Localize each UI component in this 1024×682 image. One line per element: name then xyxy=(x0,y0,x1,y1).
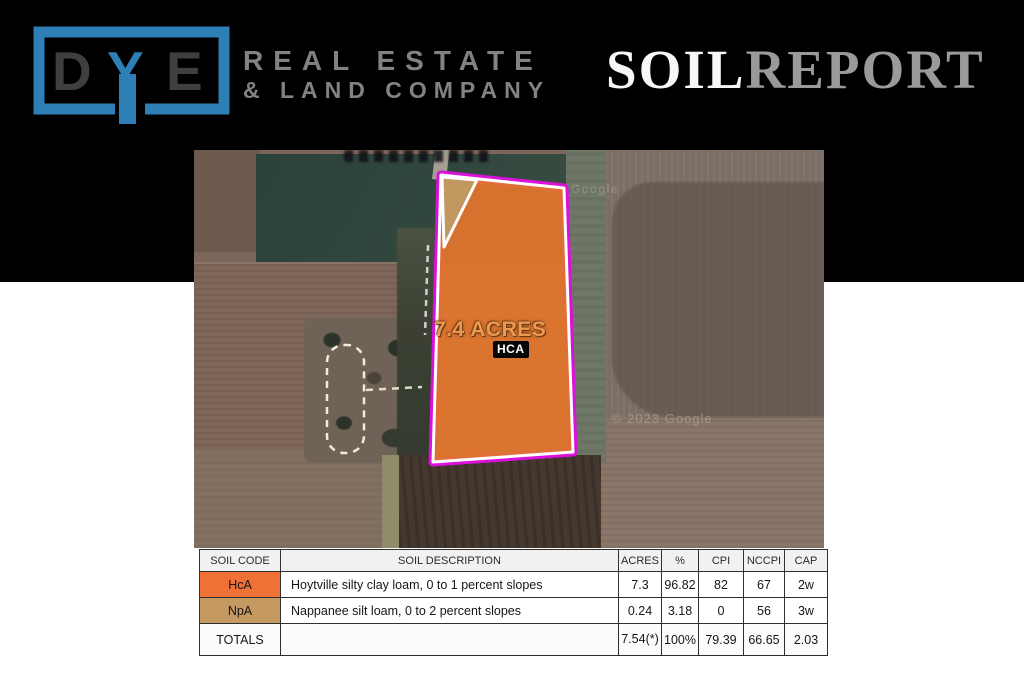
dashed-homestead-outline xyxy=(327,345,364,453)
dye-logo: D Y E xyxy=(33,26,230,125)
logo-letter-d: D xyxy=(52,40,92,102)
report-title-soil: SOIL xyxy=(606,39,745,100)
cap-cell: 2w xyxy=(784,572,827,598)
soil-table: SOIL CODE SOIL DESCRIPTION ACRES % CPI N… xyxy=(199,549,828,656)
col-header-acres: ACRES xyxy=(619,550,662,572)
soil-code-cell: NpA xyxy=(200,598,281,624)
cpi-cell: 82 xyxy=(698,572,743,598)
logo-letter-e: E xyxy=(166,40,203,102)
soil-report-page: D Y E REAL ESTATE & LAND COMPANY SOILREP… xyxy=(0,0,1024,682)
totals-nccpi-cell: 66.65 xyxy=(743,624,784,656)
soil-code-cell: HcA xyxy=(200,572,281,598)
col-header-nccpi: NCCPI xyxy=(743,550,784,572)
totals-description-cell xyxy=(281,624,619,656)
dashed-connector-line xyxy=(366,387,422,390)
percent-cell: 96.82 xyxy=(662,572,699,598)
table-row-totals: TOTALS 7.54(*) 100% 79.39 66.65 2.03 xyxy=(200,624,828,656)
col-header-cap: CAP xyxy=(784,550,827,572)
col-header-description: SOIL DESCRIPTION xyxy=(281,550,619,572)
totals-percent-cell: 100% xyxy=(662,624,699,656)
soil-code-badge: HCA xyxy=(493,341,529,358)
road-label-vertical-marks xyxy=(425,245,428,335)
totals-label-cell: TOTALS xyxy=(200,624,281,656)
acres-cell: 0.24 xyxy=(619,598,662,624)
acreage-label: 7.4 ACRES xyxy=(434,318,559,342)
report-title: SOILREPORT xyxy=(606,38,985,101)
totals-cpi-cell: 79.39 xyxy=(698,624,743,656)
company-name-line2: & LAND COMPANY xyxy=(243,77,550,104)
soil-description-cell: Hoytville silty clay loam, 0 to 1 percen… xyxy=(281,572,619,598)
google-watermark-upper: Google xyxy=(571,182,618,196)
cap-cell: 3w xyxy=(784,598,827,624)
totals-acres-cell: 7.54(*) xyxy=(619,624,662,656)
nccpi-cell: 56 xyxy=(743,598,784,624)
company-name-line1: REAL ESTATE xyxy=(243,45,543,77)
col-header-percent: % xyxy=(662,550,699,572)
col-header-soil-code: SOIL CODE xyxy=(200,550,281,572)
acres-cell: 7.3 xyxy=(619,572,662,598)
percent-cell: 3.18 xyxy=(662,598,699,624)
google-watermark-lower: © 2023 Google xyxy=(612,411,713,426)
logo-letter-y: Y xyxy=(107,40,144,102)
aerial-map-image: Google © 2023 Google 7.4 ACRES HCA xyxy=(194,150,824,548)
cpi-cell: 0 xyxy=(698,598,743,624)
table-row-hca: HcA Hoytville silty clay loam, 0 to 1 pe… xyxy=(200,572,828,598)
soil-description-cell: Nappanee silt loam, 0 to 2 percent slope… xyxy=(281,598,619,624)
table-row-npa: NpA Nappanee silt loam, 0 to 2 percent s… xyxy=(200,598,828,624)
col-header-cpi: CPI xyxy=(698,550,743,572)
totals-cap-cell: 2.03 xyxy=(784,624,827,656)
nccpi-cell: 67 xyxy=(743,572,784,598)
soil-table-header-row: SOIL CODE SOIL DESCRIPTION ACRES % CPI N… xyxy=(200,550,828,572)
report-title-report: REPORT xyxy=(745,39,984,100)
